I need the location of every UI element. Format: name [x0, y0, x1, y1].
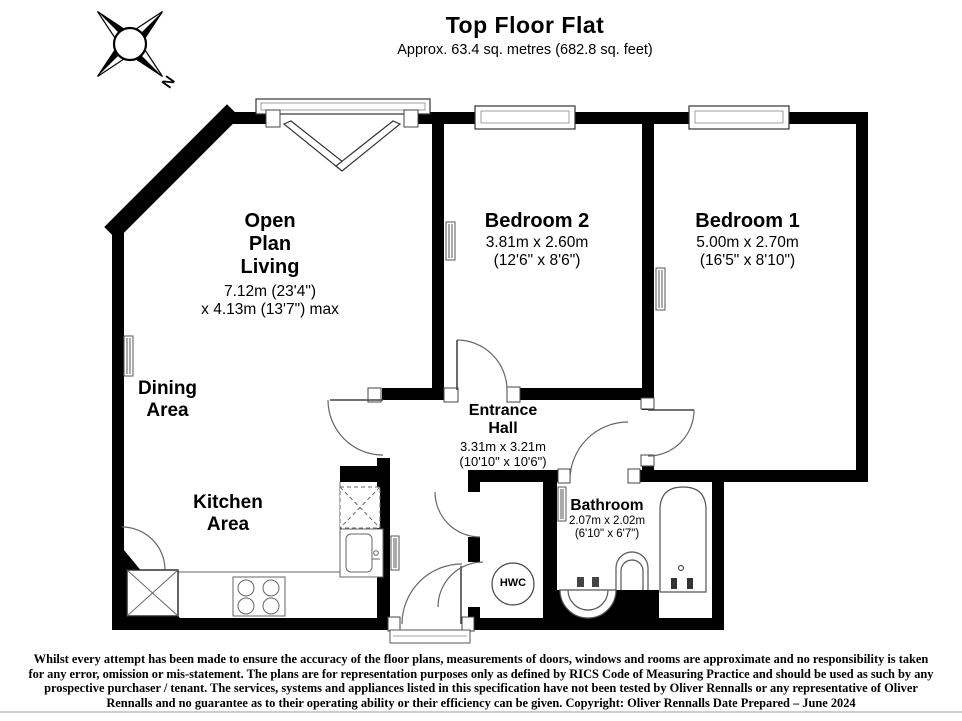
kitchen-appliance [340, 487, 380, 528]
entrance-threshold [390, 630, 470, 643]
bedroom2-window [475, 106, 575, 129]
outer-walls [112, 112, 868, 630]
bedroom2-label: Bedroom 2 [437, 210, 637, 233]
disclaimer-line-2: for any error, omission or mis-statement… [0, 667, 962, 682]
kitchen-area-label: Kitchen Area [168, 492, 288, 536]
living-room-dims: 7.12m (23'4") x 4.13m (13'7") max [150, 283, 390, 319]
french-door-leaf-right [336, 121, 400, 171]
disclaimer-line-4: Rennalls and no guarantee as to their op… [0, 696, 962, 711]
hall-radiator [391, 536, 399, 570]
bedroom1-dims: 5.00m x 2.70m (16'5" x 8'10") [645, 234, 850, 270]
disclaimer-line-1: Whilst every attempt has been made to en… [0, 652, 962, 667]
floorplan-page: N Top Floor Flat Approx. 63.4 sq. metres… [0, 0, 962, 721]
floor-plan-canvas [0, 0, 962, 721]
entrance-hall-label: Entrance Hall [418, 402, 588, 438]
bottom-rule [0, 711, 962, 713]
kitchen-sink [340, 529, 383, 577]
door-jambs [266, 110, 654, 631]
kitchen-hob [233, 577, 285, 616]
toilet [616, 552, 648, 590]
bedroom1-radiator [656, 268, 665, 310]
bedroom1-window [689, 106, 789, 129]
bedroom1-label: Bedroom 1 [645, 210, 850, 233]
bedroom2-door [457, 340, 507, 390]
bathroom-label: Bathroom [543, 497, 671, 514]
dining-area-label: Dining Area [110, 378, 225, 422]
bathroom-dims: 2.07m x 2.02m (6'10" x 6'7") [543, 515, 671, 541]
living-radiator [124, 336, 133, 376]
disclaimer: Whilst every attempt has been made to en… [0, 652, 962, 710]
disclaimer-line-3: prospective purchaser / tenant. The serv… [0, 681, 962, 696]
bedroom2-dims: 3.81m x 2.60m (12'6" x 8'6") [437, 234, 637, 270]
windows [256, 99, 789, 643]
interior-walls [340, 112, 868, 630]
living-room-door [328, 400, 383, 455]
living-room-label: Open Plan Living [165, 210, 375, 279]
entrance-hall-dims: 3.31m x 3.21m (10'10" x 10'6") [408, 439, 598, 469]
hwc-label: HWC [492, 577, 534, 589]
bedroom1-door [648, 410, 694, 456]
corner-cupboard [127, 570, 178, 616]
